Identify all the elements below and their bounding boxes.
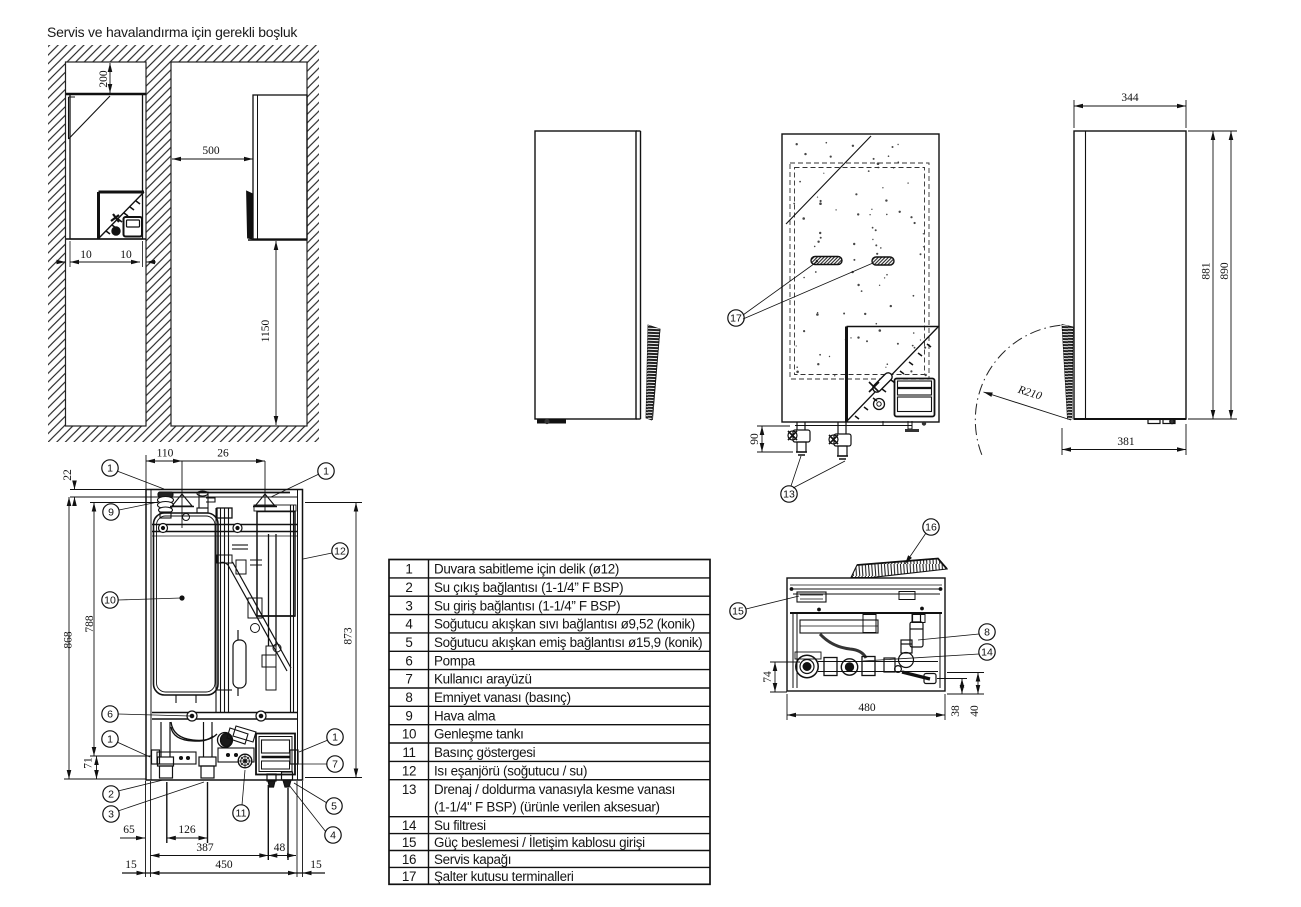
svg-text:16: 16	[925, 522, 937, 534]
svg-text:9: 9	[108, 507, 114, 519]
svg-text:11: 11	[402, 745, 415, 760]
svg-text:48: 48	[274, 842, 286, 854]
svg-text:14: 14	[981, 647, 993, 659]
svg-text:1150: 1150	[260, 319, 272, 342]
svg-text:8: 8	[405, 690, 412, 705]
svg-text:480: 480	[858, 702, 876, 714]
svg-text:5: 5	[331, 801, 337, 813]
svg-text:381: 381	[1117, 436, 1135, 448]
svg-text:12: 12	[402, 763, 416, 778]
svg-text:890: 890	[1219, 262, 1231, 280]
svg-text:126: 126	[178, 824, 196, 836]
svg-text:Soğutucu akışkan emiş bağlantı: Soğutucu akışkan emiş bağlantısı ø15,9 (…	[434, 635, 702, 650]
svg-text:65: 65	[123, 824, 135, 836]
svg-text:13: 13	[402, 782, 416, 797]
svg-text:9: 9	[405, 708, 412, 723]
svg-text:Kullanıcı arayüzü: Kullanıcı arayüzü	[434, 672, 532, 687]
svg-text:5: 5	[405, 635, 412, 650]
svg-text:Emniyet vanası (basınç): Emniyet vanası (basınç)	[434, 690, 571, 705]
svg-text:38: 38	[950, 705, 962, 717]
svg-text:10: 10	[120, 249, 132, 261]
svg-text:Hava alma: Hava alma	[434, 708, 496, 723]
svg-text:Su filtresi: Su filtresi	[434, 818, 486, 833]
svg-text:7: 7	[405, 672, 412, 687]
svg-text:26: 26	[217, 448, 229, 460]
svg-text:Su giriş bağlantısı (1-1/4” F: Su giriş bağlantısı (1-1/4” F BSP)	[434, 598, 620, 613]
svg-text:Duvara sabitleme için delik (ø: Duvara sabitleme için delik (ø12)	[434, 562, 619, 577]
svg-text:4: 4	[330, 830, 336, 842]
svg-text:Su çıkış bağlantısı (1-1/4” F: Su çıkış bağlantısı (1-1/4” F BSP)	[434, 580, 623, 595]
svg-text:15: 15	[125, 859, 137, 871]
svg-text:(1-1/4" F BSP) (ürünle verilen: (1-1/4" F BSP) (ürünle verilen aksesuar)	[434, 799, 660, 814]
svg-text:2: 2	[108, 789, 114, 801]
svg-text:1: 1	[332, 732, 338, 744]
svg-text:12: 12	[334, 546, 346, 558]
svg-text:1: 1	[405, 562, 412, 577]
svg-text:15: 15	[732, 606, 744, 618]
svg-text:500: 500	[202, 145, 220, 157]
svg-text:110: 110	[157, 448, 174, 460]
svg-text:3: 3	[405, 598, 412, 613]
svg-text:788: 788	[84, 615, 96, 633]
svg-text:40: 40	[969, 705, 981, 717]
svg-text:Servis kapağı: Servis kapağı	[434, 852, 511, 867]
svg-text:22: 22	[62, 469, 74, 481]
svg-text:4: 4	[405, 617, 413, 632]
svg-text:200: 200	[98, 70, 110, 88]
svg-text:Soğutucu akışkan sıvı bağlantı: Soğutucu akışkan sıvı bağlantısı ø9,52 (…	[434, 617, 695, 632]
svg-text:11: 11	[236, 808, 247, 820]
svg-text:Basınç göstergesi: Basınç göstergesi	[434, 745, 536, 760]
svg-text:881: 881	[1201, 262, 1213, 280]
svg-text:Drenaj / doldurma vanasıyla ke: Drenaj / doldurma vanasıyla kesme vanası	[434, 782, 675, 797]
svg-text:1: 1	[323, 466, 329, 478]
svg-text:873: 873	[343, 627, 355, 645]
svg-text:10: 10	[402, 727, 416, 742]
svg-text:450: 450	[215, 859, 233, 871]
svg-text:387: 387	[196, 842, 214, 854]
svg-text:Servis ve havalandırma için ge: Servis ve havalandırma için gerekli boşl…	[47, 24, 298, 40]
svg-text:14: 14	[402, 818, 417, 833]
svg-text:1: 1	[107, 463, 113, 475]
svg-text:Isı eşanjörü (soğutucu / su): Isı eşanjörü (soğutucu / su)	[434, 763, 587, 778]
svg-text:3: 3	[108, 809, 114, 821]
svg-text:17: 17	[402, 869, 416, 884]
svg-text:16: 16	[402, 852, 416, 867]
svg-text:344: 344	[1121, 92, 1139, 104]
svg-text:2: 2	[405, 580, 412, 595]
svg-text:Pompa: Pompa	[434, 653, 476, 668]
svg-text:Güç beslemesi / İletişim kablo: Güç beslemesi / İletişim kablosu girişi	[434, 835, 645, 850]
svg-text:Şalter kutusu terminalleri: Şalter kutusu terminalleri	[434, 869, 574, 884]
svg-text:74: 74	[762, 671, 774, 683]
svg-text:10: 10	[104, 595, 116, 607]
svg-text:868: 868	[63, 631, 75, 649]
svg-text:13: 13	[783, 489, 795, 501]
svg-text:17: 17	[730, 313, 742, 325]
svg-text:8: 8	[984, 627, 990, 639]
svg-text:6: 6	[405, 653, 412, 668]
svg-text:7: 7	[332, 759, 338, 771]
svg-text:15: 15	[310, 859, 322, 871]
svg-text:90: 90	[749, 433, 761, 445]
svg-text:15: 15	[402, 835, 416, 850]
svg-text:10: 10	[80, 249, 92, 261]
svg-text:6: 6	[107, 709, 113, 721]
svg-text:1: 1	[107, 734, 113, 746]
svg-text:Genleşme tankı: Genleşme tankı	[434, 727, 524, 742]
svg-text:71: 71	[83, 757, 95, 769]
